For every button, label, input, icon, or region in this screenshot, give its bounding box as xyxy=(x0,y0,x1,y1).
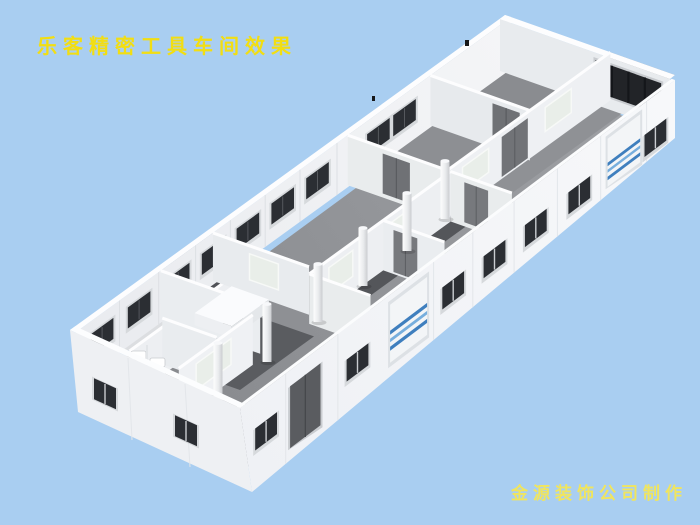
page-title: 乐客精密工具车间效果 xyxy=(37,30,297,59)
rendering-stage xyxy=(0,0,700,525)
credit-caption: 金源装饰公司制作 xyxy=(511,479,687,504)
workshop-3d-rendering xyxy=(0,0,700,525)
